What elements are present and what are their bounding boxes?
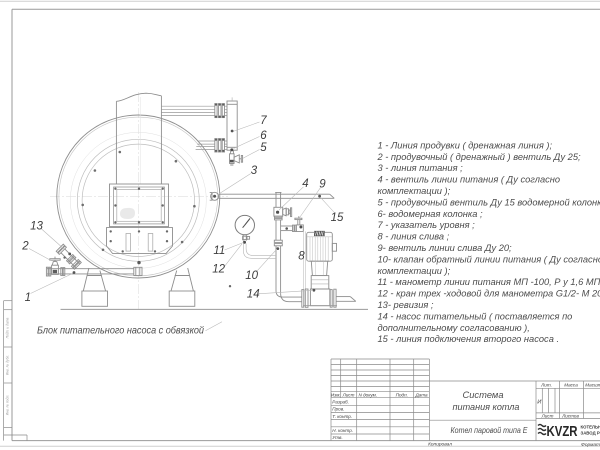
svg-text:9- вентиль линии слива Ду 20;: 9- вентиль линии слива Ду 20; [378,243,513,253]
svg-text:Дата: Дата [414,392,428,397]
svg-text:14: 14 [247,288,260,300]
svg-text:питания котла: питания котла [453,402,520,413]
svg-text:Листов: Листов [561,413,579,418]
svg-text:Масштаб: Масштаб [585,383,600,388]
svg-text:Формат А3: Формат А3 [581,442,600,448]
svg-text:8: 8 [298,251,305,263]
svg-text:КОТЕЛЬНЫЙ: КОТЕЛЬНЫЙ [581,424,600,429]
svg-text:Пров.: Пров. [332,407,344,412]
svg-text:Масса: Масса [564,383,578,388]
svg-text:Инв. № подл.: Инв. № подл. [6,395,10,416]
svg-text:Разраб.: Разраб. [332,399,349,404]
svg-text:5 - продувочный вентиль Ду 15: 5 - продувочный вентиль Ду 15 водомерной… [378,197,600,207]
svg-text:3: 3 [251,165,258,177]
svg-text:комплектации );: комплектации ); [378,186,451,196]
svg-text:2 - продувочный ( дренажный: 2 - продувочный ( дренажный ) вентиль Ду… [377,152,582,162]
svg-text:9: 9 [319,179,326,191]
svg-text:Копировал: Копировал [428,442,452,448]
svg-text:8 - линия слива ;: 8 - линия слива ; [378,232,450,242]
svg-text:12: 12 [212,264,225,276]
svg-text:7: 7 [260,115,267,127]
svg-text:Лист: Лист [541,413,554,418]
svg-text:13- ревизия ;: 13- ревизия ; [378,300,434,310]
svg-text:Т. контр.: Т. контр. [332,414,352,419]
svg-text:15: 15 [331,212,344,224]
svg-text:13: 13 [30,221,43,233]
svg-text:2: 2 [21,241,29,253]
svg-text:Блок питательного насоса с обв: Блок питательного насоса с обвязкой [37,325,204,337]
svg-text:1 - Линия продувки ( дренажн: 1 - Линия продувки ( дренажная линия ); [378,140,553,150]
svg-text:11: 11 [213,245,225,257]
svg-text:KVZR: KVZR [547,424,578,440]
svg-text:Н. контр.: Н. контр. [332,428,353,433]
svg-text:Подп.: Подп. [396,392,408,397]
svg-text:3 - линия питания ;: 3 - линия питания ; [378,163,464,173]
svg-text:10: 10 [245,270,258,282]
svg-text:Утв.: Утв. [332,435,342,440]
svg-text:дополнительному согласованию ): дополнительному согласованию ), [378,323,530,333]
svg-text:12 - кран трех -ходовой для м: 12 - кран трех -ходовой для манометра G1… [378,289,600,299]
svg-text:1: 1 [25,292,31,304]
svg-text:10- клапан обратный линии пит: 10- клапан обратный линии питания ( Ду с… [378,254,600,264]
svg-text:4 - вентиль линии питания (: 4 - вентиль линии питания ( Ду согласно [378,175,561,185]
svg-text:6: 6 [260,130,267,142]
svg-text:7 - указатель уровня ;: 7 - указатель уровня ; [378,220,476,230]
svg-text:5: 5 [260,142,267,154]
svg-text:15 - линия подключения второг: 15 - линия подключения второго насоса . [378,334,560,344]
svg-text:Лит.: Лит. [540,383,552,388]
svg-text:6- водомерная колонка ;: 6- водомерная колонка ; [378,209,484,219]
svg-text:11 - манометр линии питания М: 11 - манометр линии питания МП -100, Р у… [378,277,600,287]
svg-text:Система: Система [463,390,504,401]
svg-text:Лист: Лист [342,392,355,397]
svg-text:Инв. № дубл.: Инв. № дубл. [6,355,10,375]
svg-text:14 - насос питательный ( пос: 14 - насос питательный ( поставляется по [378,311,573,321]
svg-text:комплектации );: комплектации ); [378,266,451,276]
svg-text:N докум.: N докум. [359,392,378,397]
svg-text:4: 4 [302,178,308,190]
svg-text:Изм.: Изм. [331,392,341,397]
svg-text:Подп. и дата: Подп. и дата [6,318,10,339]
svg-text:ЗАВОД РОСС: ЗАВОД РОСС [581,431,600,436]
svg-text:Котел паровой типа Е: Котел паровой типа Е [451,425,528,435]
